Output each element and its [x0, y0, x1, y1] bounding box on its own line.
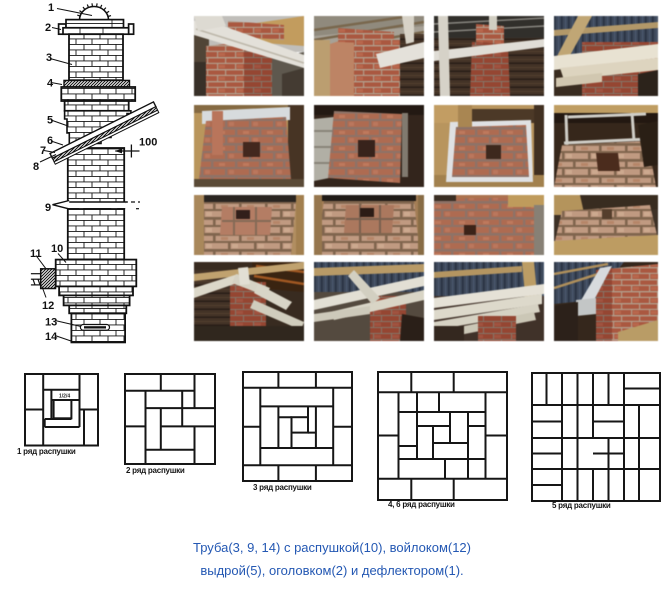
- svg-text:100: 100: [139, 137, 157, 149]
- svg-text:1/2/4: 1/2/4: [59, 394, 70, 400]
- svg-text:4: 4: [47, 78, 54, 90]
- svg-text:13: 13: [45, 317, 57, 329]
- svg-text:14: 14: [45, 331, 58, 343]
- svg-text:3: 3: [46, 52, 52, 64]
- svg-text:11: 11: [30, 248, 42, 260]
- svg-text:9: 9: [45, 202, 51, 214]
- svg-text:12: 12: [42, 300, 54, 312]
- svg-text:10: 10: [51, 243, 63, 255]
- svg-text:1: 1: [48, 2, 54, 14]
- svg-text:8: 8: [33, 161, 39, 173]
- svg-text:2: 2: [45, 22, 51, 34]
